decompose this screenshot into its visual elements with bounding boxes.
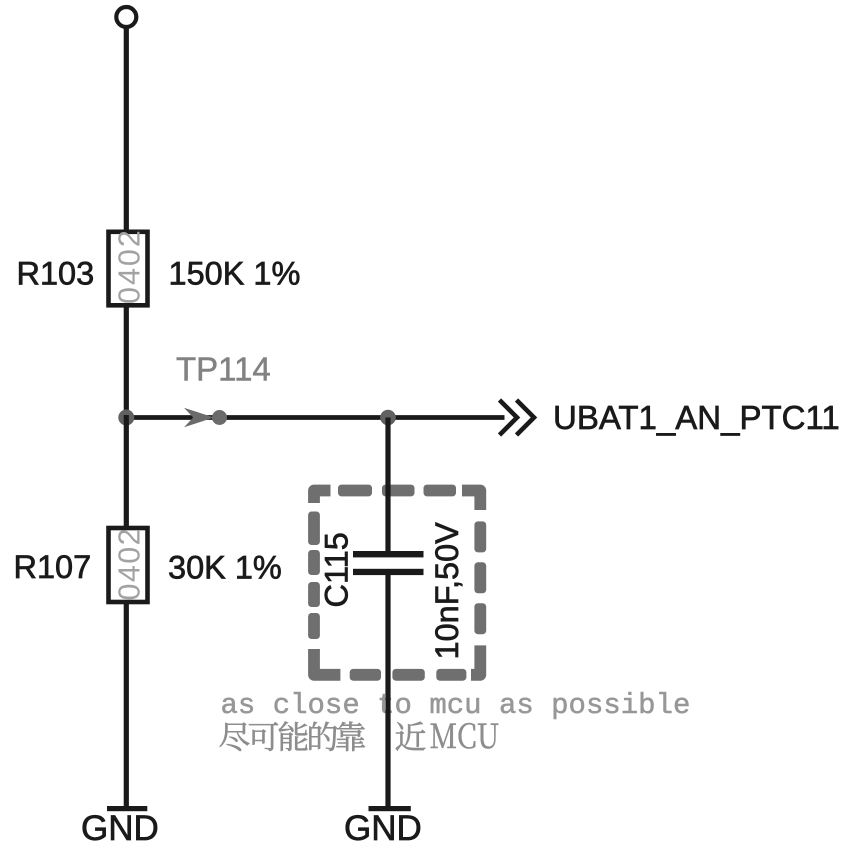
svg-text:TP114: TP114 [176, 351, 271, 388]
svg-text:GND: GND [81, 809, 159, 848]
svg-text:0402: 0402 [113, 527, 147, 600]
svg-text:C115: C115 [319, 532, 355, 607]
svg-text:30K 1%: 30K 1% [168, 550, 282, 586]
svg-text:GND: GND [344, 809, 422, 848]
svg-text:150K 1%: 150K 1% [169, 256, 301, 292]
svg-text:0402: 0402 [113, 228, 147, 304]
svg-text:R107: R107 [14, 549, 92, 585]
svg-text:UBAT1_AN_PTC11: UBAT1_AN_PTC11 [553, 399, 840, 436]
svg-text:R103: R103 [17, 256, 95, 292]
svg-text:as close to mcu as possible: as close to mcu as possible [221, 689, 691, 722]
svg-text:10nF,50V: 10nF,50V [429, 522, 465, 660]
